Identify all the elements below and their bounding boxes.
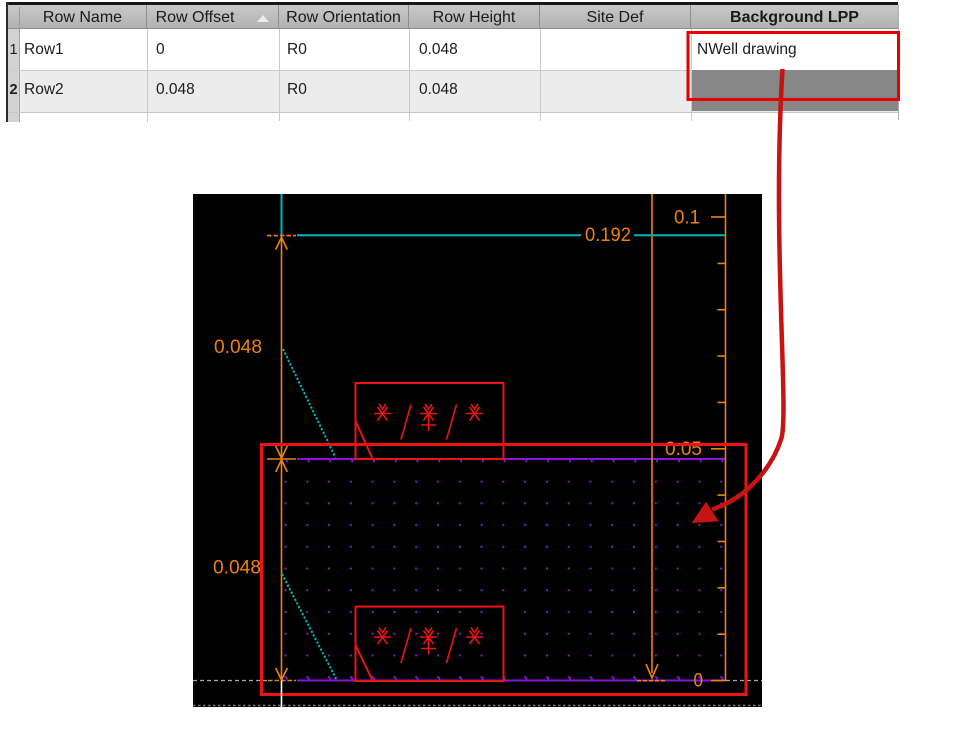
- svg-text:0.05: 0.05: [665, 439, 702, 460]
- svg-text:0.048: 0.048: [213, 558, 261, 579]
- svg-text:0.192: 0.192: [585, 225, 631, 246]
- svg-text:0: 0: [694, 671, 704, 692]
- svg-text:0.1: 0.1: [674, 208, 700, 229]
- svg-text:0.048: 0.048: [214, 337, 262, 358]
